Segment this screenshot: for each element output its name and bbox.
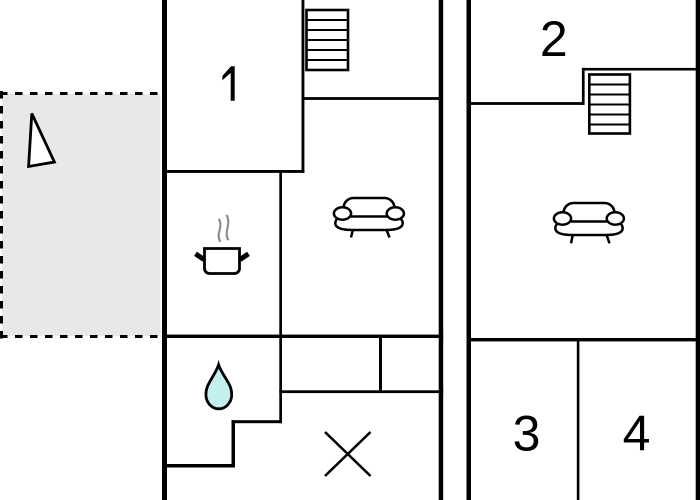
svg-text:3: 3 (513, 406, 541, 462)
svg-text:2: 2 (540, 11, 568, 67)
svg-text:4: 4 (623, 406, 651, 462)
